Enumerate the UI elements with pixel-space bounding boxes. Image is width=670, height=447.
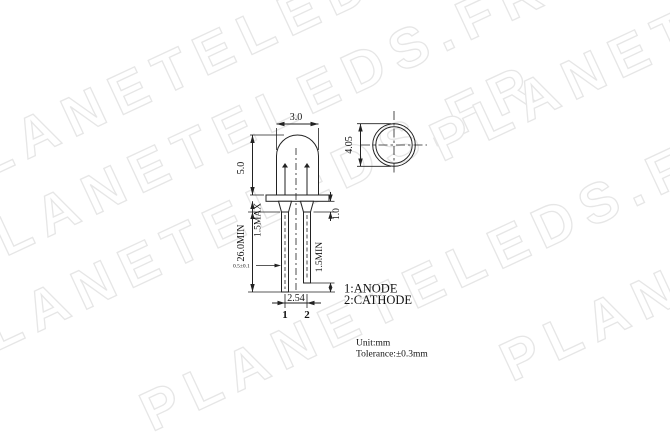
dim-lead-thickness-text: 0.5±0.1 [233, 264, 250, 270]
dim-lead-diff-text: 1.5MIN [315, 242, 325, 272]
dim-standoff-text: 1.5MAX [254, 203, 264, 237]
dim-flange-height-text: 1.0 [332, 208, 342, 220]
dim-diameter-text: 4.05 [344, 136, 355, 154]
note-tolerance: Tolerance:±0.3mm [356, 350, 428, 360]
note-unit: Unit:mm [356, 339, 391, 349]
dim-lead-pitch: 2.54 [272, 293, 321, 308]
pin1-number: 1 [282, 309, 288, 321]
led-top-view [361, 111, 427, 175]
dim-lead-diff: 1.5MIN [311, 242, 335, 292]
dim-body-width-text: 3.0 [290, 112, 303, 123]
dim-lead-thickness: 0.5±0.1 [233, 264, 281, 270]
dim-lead-pitch-text: 2.54 [287, 293, 305, 304]
technical-drawing: 3.0 5.0 1.5MAX 26.0MIN [0, 0, 670, 447]
dim-lead-length-text: 26.0MIN [236, 225, 247, 262]
led-datasheet-drawing: PLANETELEDS.FR PLANETELEDS.FR PLANETELED… [0, 0, 670, 447]
dim-body-height-text: 5.0 [236, 162, 247, 175]
legend-cathode: 2:CATHODE [344, 293, 412, 307]
pin2-number: 2 [304, 309, 310, 321]
